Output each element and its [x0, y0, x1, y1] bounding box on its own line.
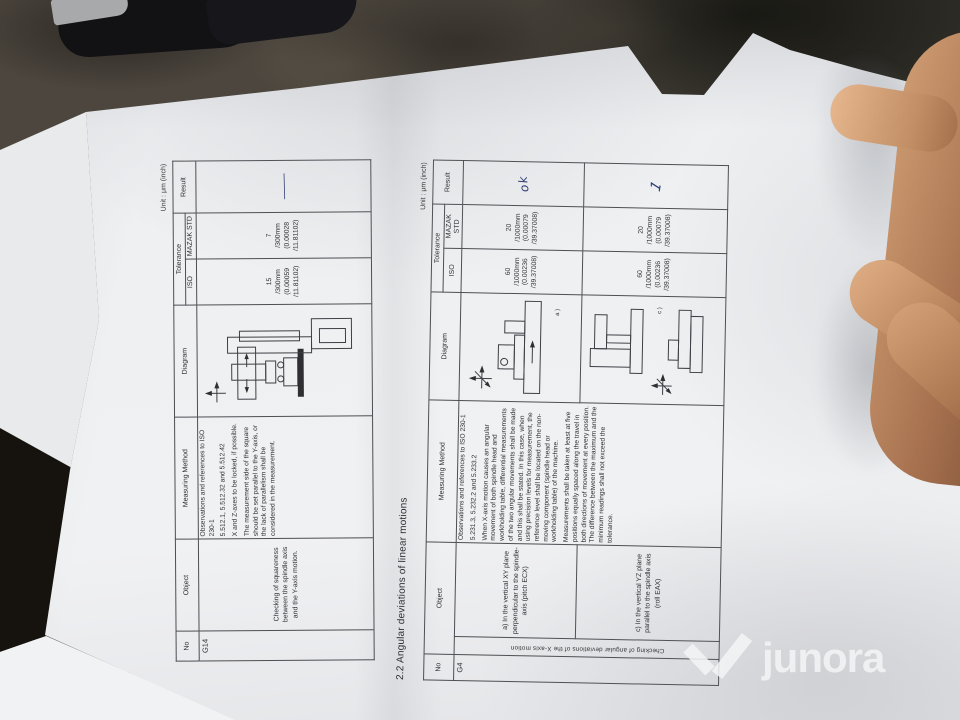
junora-check-icon: [680, 628, 754, 688]
tolerance-line: /300mm: [275, 215, 284, 256]
row-a-diagram: a ): [459, 293, 582, 403]
col-header-tolerance: Tolerance: [173, 213, 186, 305]
row-tolerance-mazak: 7 /300mm (0.00028 /11.81102): [196, 212, 371, 259]
tolerance-line: /300mm: [275, 261, 284, 302]
row-a-object: a) In the vertical XY plane perpendicula…: [455, 542, 578, 638]
tolerance-line: (0.00059: [284, 261, 293, 302]
row-c-tolerance-mazak: 20 /1000mm (0.00079 /39.37008): [583, 207, 728, 254]
col-header-object: Object: [175, 539, 199, 631]
col-header-mazak: MAZAK STD: [185, 213, 196, 259]
tolerance-line: /11.81102): [292, 215, 301, 256]
roll-diagram: c ): [582, 296, 720, 403]
col-header-object: Object: [424, 542, 457, 655]
col-header-result: Result: [433, 160, 464, 205]
method-paragraph: Observations and references to ISO 230-1: [458, 403, 469, 540]
method-paragraph: When X-axis motion causes an angular mov…: [482, 403, 563, 541]
col-header-mazak: MAZAK STD: [444, 204, 463, 248]
row-diagram: [197, 304, 373, 417]
tolerance-line: /1000mm: [514, 208, 524, 247]
tolerance-line: (0.00028: [284, 215, 293, 256]
diagram-label: a ): [555, 309, 561, 316]
tolerance-line: /11.81102): [293, 261, 302, 302]
squareness-table: No Object Measuring Method Diagram Toler…: [172, 159, 374, 661]
handwritten-dash: —: [277, 171, 291, 201]
row-a-tolerance-iso: 60 /1000mm (0.00236 /39.37008): [461, 249, 583, 295]
method-paragraph: The measurement side of the square shoul…: [243, 419, 279, 536]
method-paragraph: Observations and references to ISO 230-1: [199, 419, 217, 536]
table-row-a: G4 Checking of angular deviations of the…: [454, 161, 585, 683]
photo-scene: Unit : μm (inch) No Object Measuring Met…: [0, 0, 960, 720]
vertical-object-label: Checking of angular deviations of the X-…: [510, 643, 664, 653]
tolerance-line: 15: [266, 261, 275, 302]
row-a-result: ok: [463, 161, 585, 207]
row-c-result: 1: [584, 163, 729, 210]
row-method: Observations and references to ISO 230-1…: [457, 400, 725, 547]
col-header-method: Measuring Method: [175, 417, 199, 539]
tolerance-line: /1000mm: [646, 211, 656, 250]
junora-watermark: junora: [680, 614, 940, 702]
row-c-tolerance-iso: 60 /1000mm (0.00236 /39.37008): [582, 251, 727, 298]
col-header-iso: ISO: [185, 259, 196, 305]
row-tolerance-iso: 15 /300mm (0.00059 /11.81102): [196, 258, 371, 305]
col-header-result: Result: [173, 161, 196, 213]
pitch-diagram: a ): [461, 294, 575, 400]
row-result: —: [196, 160, 371, 213]
method-paragraph: Measurements shall be taken at least at …: [563, 405, 618, 543]
method-paragraph: 5.231.3, 5.232.2 and 5.233.2: [470, 403, 481, 540]
col-header-no: No: [424, 654, 455, 681]
col-header-diagram: Diagram: [429, 292, 461, 401]
row-a-tolerance-mazak: 20 /1000mm (0.00079 /39.37008): [462, 205, 584, 251]
row-method: Observations and references to ISO 230-1…: [198, 416, 374, 539]
junora-wordmark: junora: [762, 637, 884, 679]
squareness-diagram: [199, 307, 365, 414]
handwritten-stroke: 1: [648, 179, 665, 194]
diagram-label: c ): [657, 307, 663, 314]
handwritten-ok: ok: [516, 174, 532, 193]
method-paragraph: X and Z-axes to be locked, if possible.: [231, 419, 241, 536]
col-header-iso: ISO: [443, 248, 462, 292]
angular-deviation-block: 2.2 Angular deviations of linear motions…: [395, 160, 731, 686]
table-row: G14 Checking of squareness between the s…: [196, 160, 374, 661]
tolerance-line: /39.37008): [532, 208, 542, 247]
col-header-diagram: Diagram: [174, 305, 198, 417]
squareness-table-block: Unit : μm (inch) No Object Measuring Met…: [160, 160, 379, 661]
col-header-method: Measuring Method: [426, 400, 459, 543]
tolerance-line: 7: [266, 215, 275, 256]
tolerance-line: /39.37008): [531, 252, 541, 291]
row-no: G14: [199, 630, 374, 661]
tolerance-line: /1000mm: [513, 252, 523, 291]
row-c-diagram: c ): [580, 295, 726, 406]
tolerance-line: /39.37008): [663, 255, 673, 294]
angular-deviation-table: No Object Measuring Method Diagram Toler…: [423, 159, 729, 686]
col-header-no: No: [176, 631, 199, 661]
method-paragraph: 5.512.1, 5.512.32 and 5.512.42: [219, 419, 229, 536]
row-object: Checking of squareness between the spind…: [198, 538, 374, 631]
tolerance-line: /39.37008): [664, 211, 674, 250]
tolerance-line: /1000mm: [646, 255, 656, 294]
